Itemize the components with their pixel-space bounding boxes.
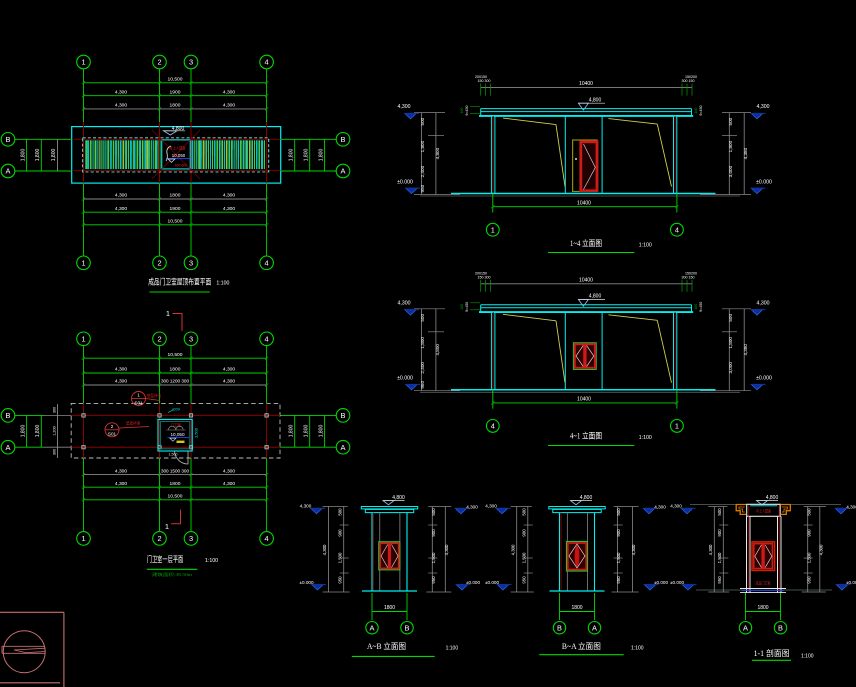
svg-text:1: 1 (81, 334, 85, 343)
svg-text:4,380: 4,380 (743, 147, 748, 159)
svg-text:2,400: 2,400 (420, 165, 425, 177)
svg-text:10400: 10400 (579, 81, 593, 87)
svg-text:1: 1 (81, 58, 85, 67)
svg-text:500: 500 (420, 314, 425, 322)
svg-text:4,800: 4,800 (766, 495, 779, 501)
svg-text:1: 1 (675, 422, 679, 431)
svg-text:成品门卫室: 成品门卫室 (756, 580, 771, 586)
svg-text:4,300: 4,300 (115, 206, 128, 212)
svg-text:10,500: 10,500 (168, 494, 183, 500)
svg-text:4,300: 4,300 (223, 206, 236, 212)
svg-text:4,300: 4,300 (631, 544, 636, 555)
svg-text:900: 900 (521, 529, 526, 537)
svg-text:1800: 1800 (170, 193, 181, 199)
svg-text:±0.000: ±0.000 (397, 180, 413, 186)
svg-text:4,300: 4,300 (757, 104, 770, 110)
svg-text:1,800: 1,800 (304, 425, 310, 438)
svg-text:2: 2 (157, 258, 161, 267)
svg-text:300 1500 300: 300 1500 300 (161, 468, 190, 473)
svg-text:1900: 1900 (170, 206, 181, 212)
svg-text:1: 1 (491, 225, 495, 234)
svg-text:1800: 1800 (170, 367, 181, 373)
svg-text:4,300: 4,300 (115, 379, 128, 385)
svg-text:4,300: 4,300 (654, 505, 666, 510)
svg-text:3: 3 (189, 58, 193, 67)
svg-text:1:100: 1:100 (639, 435, 652, 441)
svg-text:±0.000: ±0.000 (756, 180, 772, 186)
svg-text:±0.000: ±0.000 (299, 580, 313, 585)
svg-text:4,300: 4,300 (485, 504, 497, 509)
svg-text:900: 900 (806, 529, 811, 537)
svg-text:1,800: 1,800 (319, 149, 325, 162)
svg-text:500: 500 (728, 314, 733, 322)
svg-text:10400: 10400 (577, 200, 591, 206)
svg-text:1: 1 (137, 393, 140, 398)
svg-text:B: B (6, 411, 11, 420)
svg-text:300 1200 300: 300 1200 300 (161, 379, 190, 384)
svg-text:4,300: 4,300 (398, 300, 411, 306)
svg-text:4: 4 (265, 534, 269, 543)
svg-text:950: 950 (420, 184, 425, 192)
svg-text:4,300: 4,300 (444, 544, 449, 555)
svg-text:4,300: 4,300 (818, 544, 823, 555)
svg-text:150 300: 150 300 (478, 275, 491, 279)
svg-text:500: 500 (521, 508, 526, 516)
svg-text:S01: S01 (134, 400, 143, 405)
svg-text:4,300: 4,300 (115, 481, 128, 487)
svg-text:±0.000: ±0.000 (397, 376, 413, 382)
svg-text:1,800: 1,800 (289, 149, 295, 162)
svg-text:1,500: 1,500 (431, 552, 436, 563)
svg-text:10,500: 10,500 (168, 219, 183, 225)
svg-text:4: 4 (491, 422, 495, 431)
svg-text:A: A (6, 167, 11, 176)
svg-text:4,300: 4,300 (115, 103, 128, 109)
svg-text:1,800: 1,800 (51, 149, 57, 162)
svg-text:1800: 1800 (571, 605, 582, 611)
svg-text:4,300: 4,300 (223, 367, 236, 373)
svg-text:1800: 1800 (757, 605, 768, 611)
svg-text:1,200: 1,200 (52, 426, 56, 436)
svg-text:1,500: 1,500 (337, 552, 342, 563)
svg-text:4,380: 4,380 (743, 344, 748, 356)
svg-text:2: 2 (157, 334, 161, 343)
svg-text:900: 900 (431, 529, 436, 537)
svg-text:4,300: 4,300 (223, 193, 236, 199)
svg-text:2: 2 (111, 424, 114, 429)
svg-text:200150: 200150 (475, 75, 487, 79)
svg-text:100: 100 (694, 108, 698, 114)
svg-text:B: B (341, 411, 346, 420)
svg-text:2,400: 2,400 (420, 362, 425, 374)
svg-text:500: 500 (431, 508, 436, 516)
svg-text:1,500: 1,500 (806, 552, 811, 563)
svg-text:4,300: 4,300 (223, 103, 236, 109)
svg-text:1,800: 1,800 (319, 425, 325, 438)
svg-text:300: 300 (52, 407, 56, 413)
svg-text:1800: 1800 (170, 481, 181, 487)
svg-text:垫层补强: 垫层补强 (126, 420, 141, 427)
svg-text:4,300: 4,300 (757, 300, 770, 306)
svg-text:4,300: 4,300 (300, 504, 312, 509)
svg-text:10400: 10400 (577, 397, 591, 403)
svg-text:4,300: 4,300 (466, 505, 478, 510)
svg-text:9=450: 9=450 (699, 302, 703, 312)
svg-text:B: B (557, 623, 562, 632)
svg-text:500: 500 (420, 117, 425, 125)
svg-text:1,800: 1,800 (21, 149, 27, 162)
svg-text:100: 100 (460, 304, 464, 310)
svg-text:门卫室: 门卫室 (171, 422, 181, 429)
svg-text:3: 3 (189, 258, 193, 267)
svg-text:1,800: 1,800 (289, 425, 295, 438)
svg-text:4,300: 4,300 (115, 89, 128, 95)
svg-text:300 150: 300 150 (682, 79, 695, 83)
svg-text:100: 100 (460, 108, 464, 114)
svg-text:4,800: 4,800 (392, 495, 405, 501)
svg-text:4,300: 4,300 (322, 544, 327, 555)
svg-text:4,300: 4,300 (115, 193, 128, 199)
svg-text:1800: 1800 (384, 605, 395, 611)
svg-text:4,300: 4,300 (223, 379, 236, 385)
svg-text:A: A (743, 623, 748, 632)
svg-text:1:100: 1:100 (446, 646, 459, 652)
svg-text:950: 950 (337, 576, 342, 584)
svg-text:1:100: 1:100 (205, 558, 218, 564)
svg-text:300: 300 (52, 449, 56, 455)
svg-text:950: 950 (717, 576, 722, 584)
svg-text:300 150: 300 150 (682, 275, 695, 279)
svg-text:4,800: 4,800 (435, 147, 440, 159)
svg-text:1,800: 1,800 (420, 140, 425, 152)
svg-text:1: 1 (81, 534, 85, 543)
svg-text:4,300: 4,300 (510, 544, 515, 555)
svg-text:950: 950 (521, 576, 526, 584)
svg-text:B: B (6, 135, 11, 144)
svg-text:3: 3 (189, 334, 193, 343)
svg-text:2: 2 (157, 58, 161, 67)
svg-text:1~4 立面图: 1~4 立面图 (570, 238, 602, 248)
svg-text:4,800: 4,800 (589, 97, 602, 103)
svg-text:100: 100 (694, 304, 698, 310)
svg-text:4,300: 4,300 (223, 481, 236, 487)
svg-text:平上人屋面: 平上人屋面 (756, 507, 771, 513)
svg-text:4~1 立面图: 4~1 立面图 (570, 431, 602, 441)
svg-text:4,300: 4,300 (223, 89, 236, 95)
svg-text:1900: 1900 (170, 89, 181, 95)
svg-text:4,800: 4,800 (589, 294, 602, 300)
svg-text:4: 4 (265, 58, 269, 67)
svg-text:4: 4 (265, 258, 269, 267)
svg-text:950: 950 (806, 576, 811, 584)
svg-text:1,800: 1,800 (728, 140, 733, 152)
svg-text:3,000: 3,000 (728, 165, 733, 177)
svg-text:10,050: 10,050 (172, 153, 186, 158)
svg-text:1: 1 (165, 522, 169, 531)
svg-text:±0.000: ±0.000 (846, 580, 856, 585)
svg-text:1,500: 1,500 (616, 552, 621, 563)
svg-text:±0.000: ±0.000 (485, 580, 499, 585)
svg-text:±0.000: ±0.000 (654, 580, 668, 585)
svg-text:9=450: 9=450 (465, 302, 469, 312)
svg-text:S01: S01 (108, 432, 117, 437)
svg-text:A: A (592, 623, 597, 632)
svg-text:950: 950 (420, 381, 425, 389)
svg-text:500: 500 (717, 508, 722, 516)
svg-text:1800: 1800 (170, 103, 181, 109)
svg-text:3: 3 (189, 534, 193, 543)
svg-text:600x600: 600x600 (175, 164, 187, 168)
svg-text:150 300: 150 300 (478, 79, 491, 83)
svg-text:±0.000: ±0.000 (670, 580, 684, 585)
svg-text:B: B (405, 623, 410, 632)
svg-text:B~A 立面图: B~A 立面图 (562, 641, 601, 651)
svg-text:2: 2 (157, 534, 161, 543)
svg-text:10400: 10400 (579, 277, 593, 283)
svg-text:9=450: 9=450 (465, 106, 469, 116)
svg-text:4,300: 4,300 (398, 104, 411, 110)
svg-text:1:100: 1:100 (631, 646, 644, 652)
svg-text:1,500: 1,500 (521, 552, 526, 563)
svg-text:1,800: 1,800 (35, 149, 41, 162)
svg-text:1: 1 (166, 309, 170, 318)
svg-text:A: A (370, 623, 375, 632)
svg-text:900: 900 (717, 529, 722, 537)
svg-text:4,300: 4,300 (115, 367, 128, 373)
svg-text:500: 500 (728, 117, 733, 125)
svg-text:1: 1 (81, 258, 85, 267)
svg-text:900: 900 (616, 529, 621, 537)
svg-text:10,500: 10,500 (168, 352, 183, 358)
svg-text:1-1 剖面图: 1-1 剖面图 (754, 648, 790, 658)
svg-text:B: B (341, 135, 346, 144)
svg-text:1:100: 1:100 (801, 654, 814, 660)
svg-text:9=450: 9=450 (699, 106, 703, 116)
svg-text:4,800: 4,800 (435, 344, 440, 356)
svg-text:950: 950 (431, 576, 436, 584)
svg-text:4,800: 4,800 (580, 495, 593, 501)
svg-text:4,300: 4,300 (708, 544, 713, 555)
svg-text:4,300: 4,300 (115, 468, 128, 474)
svg-text:150200: 150200 (685, 75, 697, 79)
svg-text:1:100: 1:100 (639, 243, 652, 249)
svg-text:1,500: 1,500 (169, 453, 178, 457)
svg-text:10,500: 10,500 (168, 77, 183, 83)
svg-text:200150: 200150 (475, 271, 487, 275)
svg-text:B: B (778, 623, 783, 632)
svg-text:平上人屋面: 平上人屋面 (170, 145, 186, 151)
svg-text:1,800: 1,800 (35, 425, 41, 438)
svg-text:1,800: 1,800 (420, 337, 425, 349)
svg-text:成品门卫室屋顶布置平面: 成品门卫室屋顶布置平面 (148, 277, 211, 287)
svg-text:10,050: 10,050 (170, 432, 184, 437)
svg-text:±0.000: ±0.000 (466, 580, 480, 585)
svg-text:4,300: 4,300 (670, 504, 682, 509)
svg-text:950: 950 (616, 576, 621, 584)
svg-text:1,800: 1,800 (728, 337, 733, 349)
svg-text:4: 4 (675, 225, 679, 234)
svg-text:1,800: 1,800 (304, 149, 310, 162)
svg-text:500: 500 (806, 508, 811, 516)
svg-text:建筑面积:38.50m: 建筑面积:38.50m (152, 571, 193, 577)
svg-text:4: 4 (265, 334, 269, 343)
svg-text:门卫室一层平面: 门卫室一层平面 (147, 554, 184, 564)
svg-text:3,000: 3,000 (728, 362, 733, 374)
svg-text:A: A (341, 443, 346, 452)
svg-text:500: 500 (337, 508, 342, 516)
svg-text:150200: 150200 (685, 271, 697, 275)
svg-text:1,800: 1,800 (21, 425, 27, 438)
svg-text:±0.000: ±0.000 (756, 376, 772, 382)
svg-text:A: A (341, 167, 346, 176)
svg-text:垫层补强: 垫层补强 (147, 392, 162, 399)
svg-text:1,500: 1,500 (717, 552, 722, 563)
svg-text:C09: C09 (172, 407, 180, 412)
svg-text:A: A (6, 443, 11, 452)
svg-text:4,300: 4,300 (223, 468, 236, 474)
svg-text:4,300: 4,300 (846, 505, 856, 510)
svg-text:1,500: 1,500 (194, 427, 199, 438)
svg-text:A~B 立面图: A~B 立面图 (367, 641, 406, 651)
svg-text:1:100: 1:100 (216, 281, 229, 287)
svg-text:900: 900 (337, 529, 342, 537)
svg-text:500: 500 (616, 508, 621, 516)
